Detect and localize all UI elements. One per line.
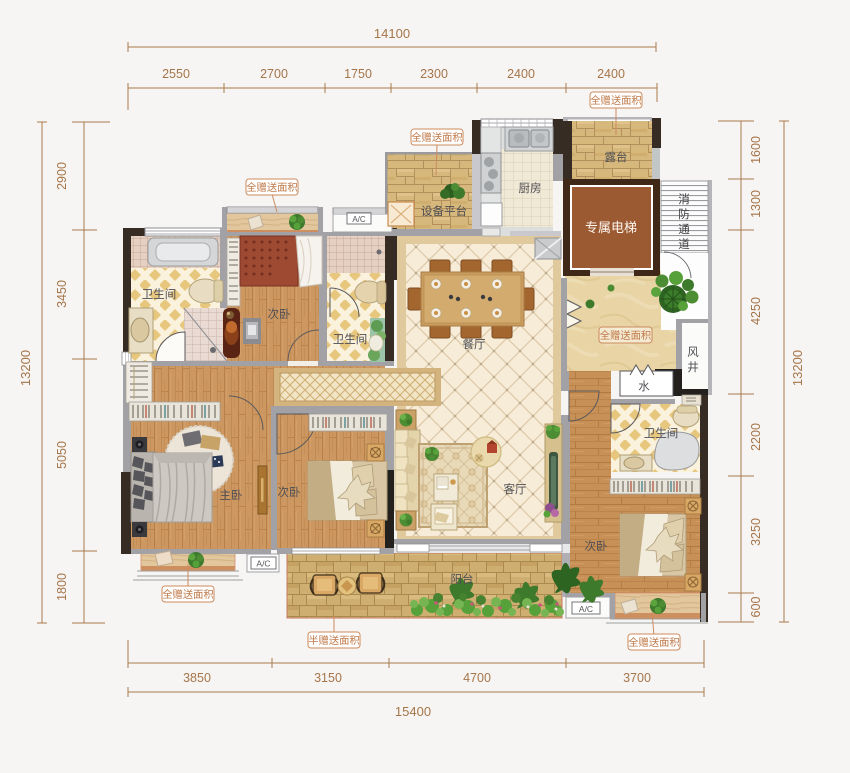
svg-text:13200: 13200 <box>790 350 805 386</box>
svg-text:A/C: A/C <box>579 604 593 614</box>
svg-text:2200: 2200 <box>749 423 763 451</box>
svg-text:14100: 14100 <box>374 26 410 41</box>
svg-text:全赠送面积: 全赠送面积 <box>628 636 679 649</box>
svg-text:2400: 2400 <box>507 67 535 81</box>
svg-text:3150: 3150 <box>314 671 342 685</box>
svg-text:1800: 1800 <box>55 573 69 601</box>
svg-text:3450: 3450 <box>55 280 69 308</box>
svg-text:次卧: 次卧 <box>268 307 291 321</box>
svg-text:5050: 5050 <box>55 441 69 469</box>
svg-text:2900: 2900 <box>55 162 69 190</box>
svg-text:4250: 4250 <box>749 297 763 325</box>
svg-text:半赠送面积: 半赠送面积 <box>308 634 359 647</box>
svg-text:全赠送面积: 全赠送面积 <box>246 181 297 194</box>
svg-text:3250: 3250 <box>749 518 763 546</box>
svg-text:主卧: 主卧 <box>220 489 243 502</box>
svg-text:2550: 2550 <box>162 67 190 81</box>
svg-text:餐厅: 餐厅 <box>463 337 486 351</box>
svg-text:A/C: A/C <box>352 215 366 224</box>
svg-text:600: 600 <box>749 597 763 618</box>
svg-text:3700: 3700 <box>623 671 651 685</box>
svg-text:消: 消 <box>678 192 690 206</box>
svg-text:卫生间: 卫生间 <box>333 332 368 346</box>
svg-text:露台: 露台 <box>605 150 628 164</box>
svg-text:水: 水 <box>638 380 650 393</box>
svg-text:1750: 1750 <box>344 67 372 81</box>
svg-text:全赠送面积: 全赠送面积 <box>411 131 462 144</box>
svg-text:1600: 1600 <box>749 136 763 164</box>
svg-text:3850: 3850 <box>183 671 211 685</box>
svg-text:道: 道 <box>678 237 690 251</box>
svg-text:专属电梯: 专属电梯 <box>585 220 637 235</box>
svg-text:2700: 2700 <box>260 67 288 81</box>
svg-text:全赠送面积: 全赠送面积 <box>162 588 213 601</box>
svg-text:阳台: 阳台 <box>451 572 474 586</box>
svg-text:4700: 4700 <box>463 671 491 685</box>
svg-text:2400: 2400 <box>597 67 625 81</box>
svg-text:全赠送面积: 全赠送面积 <box>590 94 641 107</box>
svg-text:全赠送面积: 全赠送面积 <box>600 329 651 342</box>
svg-text:通: 通 <box>678 223 690 236</box>
svg-text:A/C: A/C <box>256 559 270 569</box>
svg-text:风: 风 <box>687 346 699 359</box>
svg-text:15400: 15400 <box>395 704 431 719</box>
svg-text:井: 井 <box>687 360 699 374</box>
svg-text:卫生间: 卫生间 <box>142 287 177 301</box>
svg-text:客厅: 客厅 <box>504 482 527 496</box>
svg-text:1300: 1300 <box>749 190 763 218</box>
svg-text:次卧: 次卧 <box>585 539 608 553</box>
svg-text:卫生间: 卫生间 <box>644 426 679 440</box>
svg-text:2300: 2300 <box>420 67 448 81</box>
svg-text:次卧: 次卧 <box>278 485 301 499</box>
svg-text:设备平台: 设备平台 <box>421 204 467 218</box>
svg-text:防: 防 <box>678 207 690 221</box>
svg-text:厨房: 厨房 <box>519 182 542 195</box>
svg-text:13200: 13200 <box>18 350 33 386</box>
